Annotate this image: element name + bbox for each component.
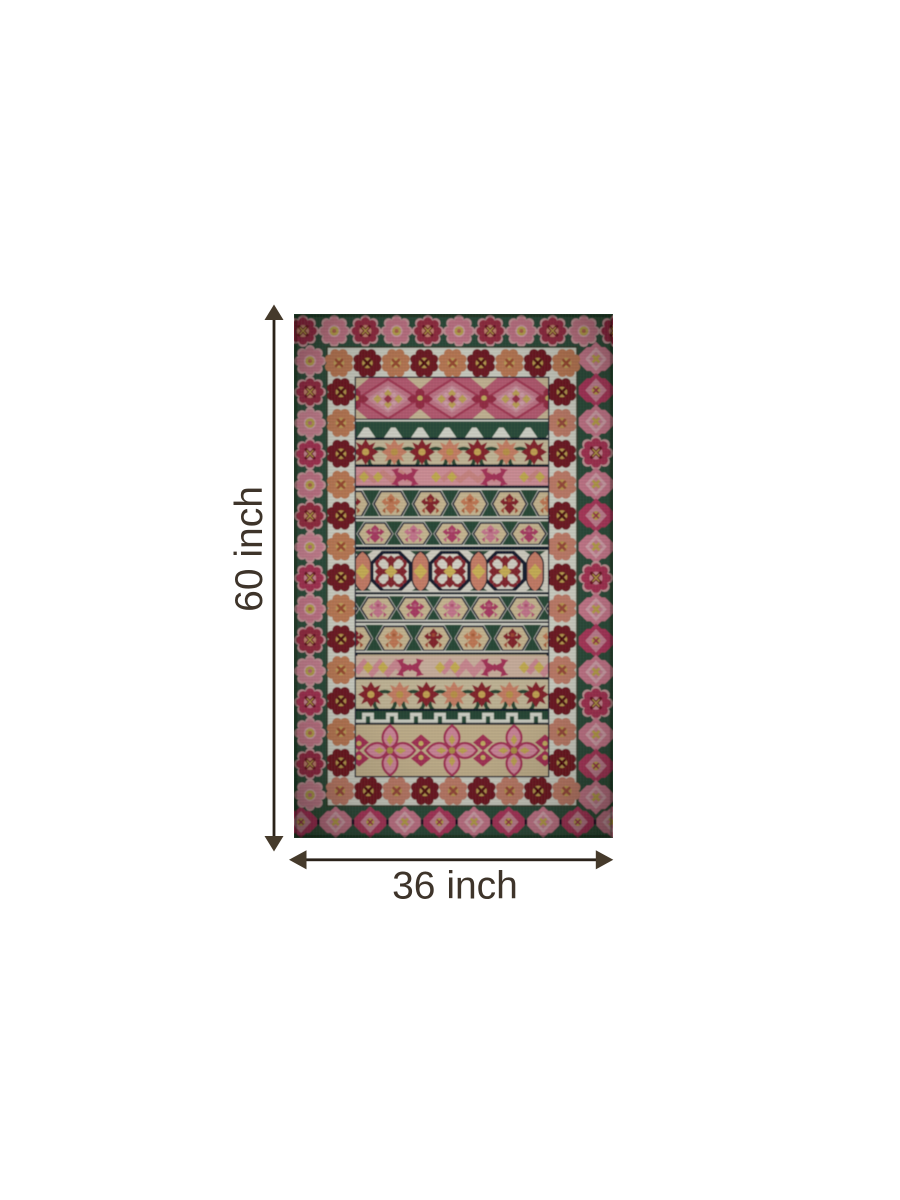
svg-text:60 inch: 60 inch (228, 486, 271, 612)
svg-text:36 inch: 36 inch (392, 865, 518, 908)
